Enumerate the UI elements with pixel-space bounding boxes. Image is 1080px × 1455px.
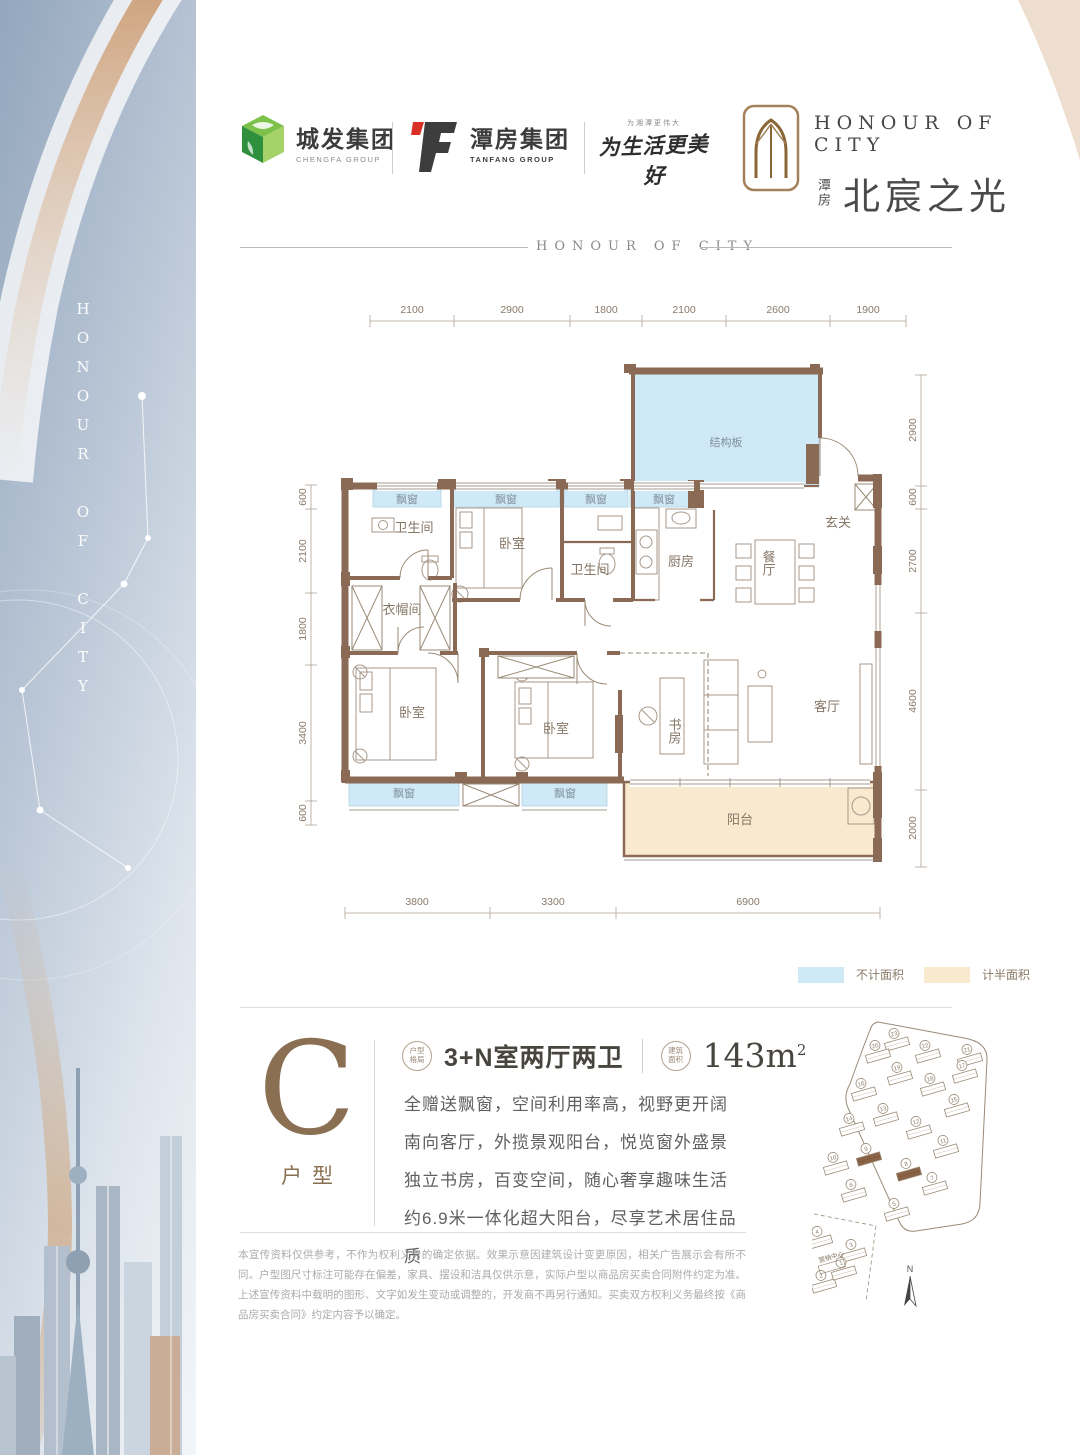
svg-text:6900: 6900 [736, 896, 760, 908]
area-badge-line2: 面积 [668, 1056, 683, 1065]
slogan-block: 为湘潭更伟大 为生活更美好 [596, 118, 712, 190]
label-bay: 飘窗 [495, 492, 517, 506]
siteplan-building-19: 19 [884, 1059, 913, 1085]
svg-text:2900: 2900 [907, 418, 919, 442]
svg-text:600: 600 [297, 488, 309, 506]
disclaimer-divider [240, 1232, 746, 1233]
siteplan-building-15: 15 [941, 1091, 970, 1117]
svg-text:3300: 3300 [541, 896, 565, 908]
tanfang-sub: TANFANG GROUP [470, 155, 570, 164]
poster-page: HONOUR OF CITY 城发集团 CHENGFA GROUP 潭房集团 T… [0, 0, 1080, 1455]
label-dining: 餐厅 [761, 549, 776, 576]
legend-swatch-beige [924, 967, 970, 983]
area-badge: 建筑 面积 [661, 1041, 691, 1071]
brand-cn: 北宸之光 [843, 166, 1011, 220]
section-divider [240, 1007, 952, 1008]
siteplan: 2322212019181716151413121110987654321 营销… [812, 1012, 1052, 1312]
chengfa-name: 城发集团 [296, 128, 396, 151]
label-cloak: 衣帽间 [382, 602, 421, 617]
slogan-main: 为生活更美好 [595, 128, 713, 192]
layout-text: 3+N室两厅两卫 [444, 1038, 624, 1074]
svg-text:600: 600 [297, 804, 309, 822]
label-study: 书房 [667, 718, 682, 744]
siteplan-building-12: 12 [903, 1113, 932, 1139]
siteplan-building-13: 13 [870, 1100, 899, 1126]
unit-type-block: C 户型 [246, 1026, 368, 1190]
header-divider-1 [392, 122, 393, 174]
header-divider-2 [584, 122, 585, 174]
brand-en: HONOUR OF CITY [814, 112, 1080, 156]
label-bay: 飘窗 [554, 786, 576, 800]
svg-text:2000: 2000 [907, 816, 919, 840]
label-bay: 飘窗 [396, 492, 418, 506]
siteplan-building-23: 23 [881, 1025, 910, 1051]
svg-text:2700: 2700 [907, 549, 919, 573]
chengfa-cube-icon [238, 112, 288, 172]
label-bay: 飘窗 [585, 492, 607, 506]
svg-text:1800: 1800 [297, 617, 309, 641]
label-bedroom-top: 卧室 [499, 536, 525, 551]
label-struct: 结构板 [710, 435, 743, 449]
layout-badge: 户型 格局 [402, 1041, 432, 1071]
chengfa-logo [238, 112, 288, 177]
svg-text:3400: 3400 [297, 721, 309, 745]
siteplan-building-4: 4 [812, 1223, 833, 1249]
siteplan-building-6: 6 [838, 1176, 867, 1202]
chengfa-text: 城发集团 CHENGFA GROUP [296, 128, 396, 164]
siteplan-building-5: 5 [881, 1195, 910, 1221]
label-balcony: 阳台 [727, 812, 753, 827]
band-art [0, 0, 196, 1455]
siteplan-building-10: 10 [820, 1149, 849, 1175]
brand-text: HONOUR OF CITY 潭房 北宸之光 [814, 112, 1080, 220]
label-bay: 飘窗 [393, 786, 415, 800]
desc-line: 南向客厅，外揽景观阳台，悦览窗外盛景 [404, 1124, 749, 1162]
legend-swatch-blue [798, 967, 844, 983]
label-bedroom-left: 卧室 [399, 705, 425, 720]
summary-divider [642, 1039, 643, 1073]
svg-text:2100: 2100 [400, 304, 424, 316]
svg-text:2100: 2100 [297, 539, 309, 563]
siteplan-building-2: 2 [812, 1267, 837, 1293]
siteplan-building-22: 22 [912, 1037, 941, 1063]
area-text: 143m2 [703, 1036, 807, 1075]
desc-line: 全赠送飘窗，空间利用率高，视野更开阔 [404, 1086, 749, 1124]
brand-emblem [742, 104, 800, 197]
divider-line-right [700, 247, 952, 248]
left-decorative-band: HONOUR OF CITY [0, 0, 196, 1455]
area-legend: 不计面积 计半面积 [798, 966, 1030, 983]
siteplan-building-7: 7 [919, 1169, 948, 1195]
svg-text:1800: 1800 [594, 304, 618, 316]
label-bedroom-mid: 卧室 [543, 721, 569, 736]
divider-line-left [240, 247, 528, 248]
tf-monogram-icon [408, 116, 462, 176]
svg-text:2600: 2600 [766, 304, 790, 316]
desc-line: 独立书房，百变空间，随心奢享趣味生活 [404, 1162, 749, 1200]
label-bath-1: 卫生间 [394, 520, 433, 535]
compass-icon: N [904, 1264, 916, 1306]
label-entry: 玄关 [825, 515, 851, 530]
label-bath-2: 卫生间 [570, 562, 609, 577]
legend-label-beige: 计半面积 [982, 966, 1030, 983]
siteplan-building-9: 9 [853, 1140, 882, 1166]
svg-text:2900: 2900 [500, 304, 524, 316]
svg-text:2100: 2100 [672, 304, 696, 316]
unit-type-letter: C [246, 1026, 368, 1154]
layout-badge-line2: 格局 [410, 1056, 425, 1065]
unit-type-label: 户型 [246, 1160, 368, 1190]
siteplan-building-20: 20 [862, 1037, 891, 1063]
label-kitchen: 厨房 [668, 554, 694, 569]
label-bay: 飘窗 [653, 492, 675, 506]
chengfa-sub: CHENGFA GROUP [296, 155, 396, 164]
brand-emblem-icon [742, 104, 800, 192]
unit-summary-row: 户型 格局 3+N室两厅两卫 建筑 面积 143m2 [402, 1036, 806, 1075]
svg-text:600: 600 [907, 488, 919, 506]
siteplan-building-8: 8 [893, 1155, 922, 1181]
svg-text:N: N [907, 1264, 914, 1274]
tanfang-name: 潭房集团 [470, 128, 570, 151]
svg-text:3800: 3800 [405, 896, 429, 908]
label-living: 客厅 [814, 699, 840, 714]
legend-label-blue: 不计面积 [856, 966, 904, 983]
tanfang-text: 潭房集团 TANFANG GROUP [470, 128, 570, 164]
band-vertical-text: HONOUR OF CITY [74, 300, 92, 706]
siteplan-building-16: 16 [848, 1075, 877, 1101]
siteplan-building-11: 11 [930, 1132, 959, 1158]
disclaimer-text: 本宣传资料仅供参考，不作为权利义务的确定依据。效果示意因建筑设计变更原因，相关广… [238, 1246, 746, 1326]
city-skyline [0, 1068, 182, 1455]
slogan-small: 为湘潭更伟大 [596, 118, 712, 128]
floorplan: 结构板 玄关 飘窗 飘窗 飘窗 飘窗 飘窗 飘窗 卫生间 卫生间 卧室 厨房 餐… [295, 285, 975, 955]
svg-text:1900: 1900 [856, 304, 880, 316]
info-divider [374, 1040, 375, 1226]
svg-text:4600: 4600 [907, 689, 919, 713]
tanfang-logo [408, 116, 462, 181]
siteplan-building-18: 18 [917, 1070, 946, 1096]
brand-cn-small: 潭房 [814, 178, 833, 208]
siteplan-building-14: 14 [836, 1110, 865, 1136]
